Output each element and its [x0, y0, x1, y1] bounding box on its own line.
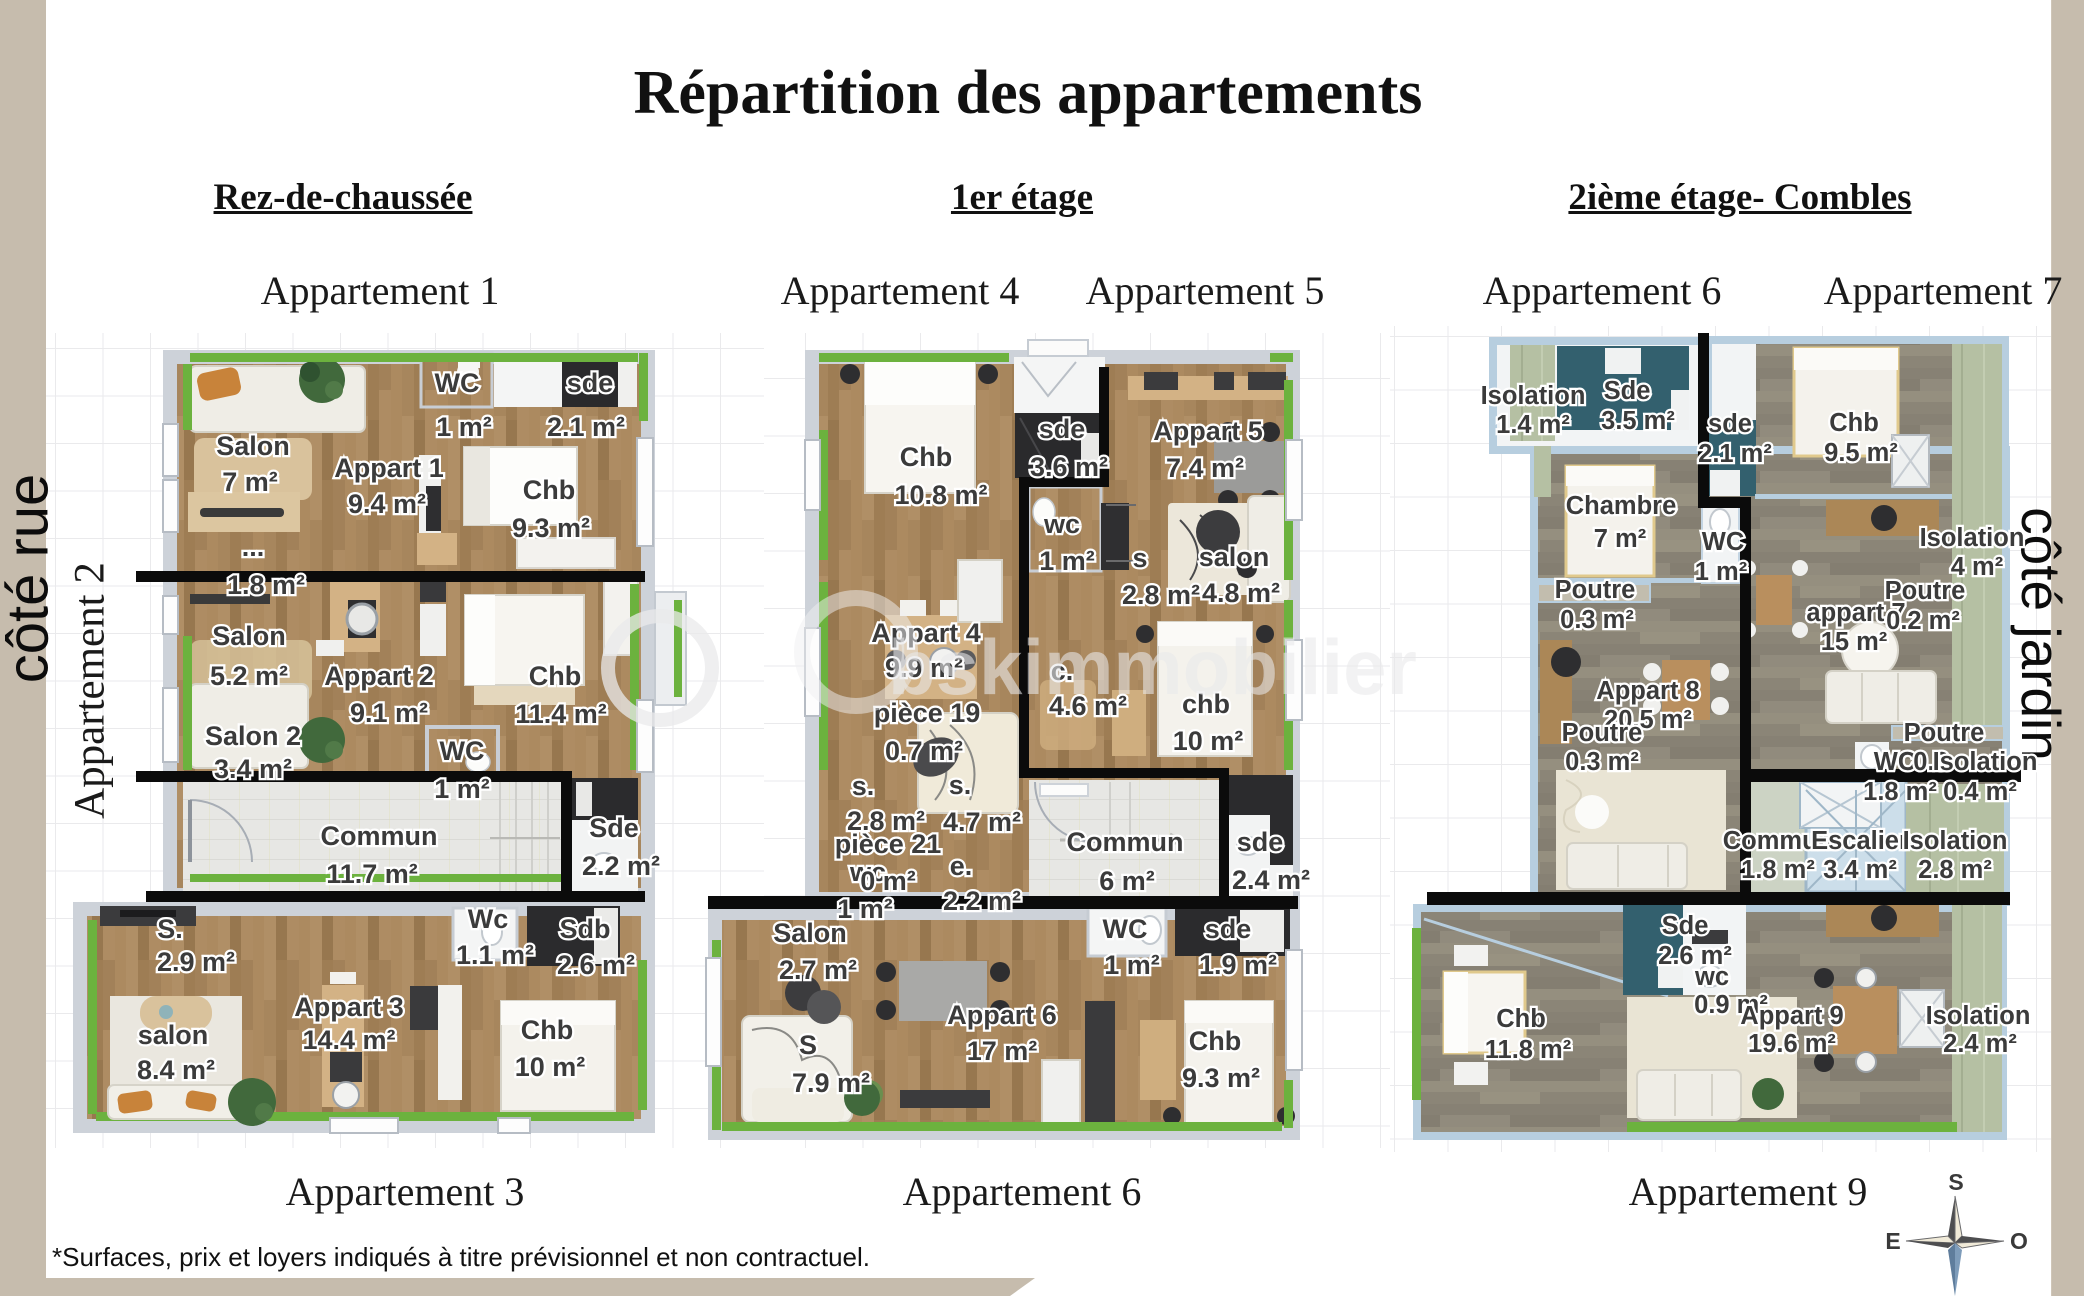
svg-text:0 m²: 0 m²	[860, 866, 916, 896]
svg-text:10.8 m²: 10.8 m²	[894, 480, 987, 510]
svg-text:1 m²: 1 m²	[1695, 558, 1747, 586]
svg-text:Appart 1: Appart 1	[334, 453, 444, 483]
svg-text:2.6 m²: 2.6 m²	[557, 950, 635, 980]
svg-text:Chb: Chb	[1189, 1026, 1241, 1056]
svg-text:sde: sde	[1205, 914, 1252, 944]
svg-text:...: ...	[242, 532, 265, 562]
svg-text:Isolation: Isolation	[1903, 827, 2008, 855]
svg-text:3.4 m²: 3.4 m²	[1823, 856, 1897, 884]
svg-text:Chb: Chb	[523, 475, 575, 505]
svg-text:Appart 3: Appart 3	[294, 992, 404, 1022]
svg-text:Poutre: Poutre	[1562, 719, 1643, 747]
svg-text:Sde: Sde	[1662, 912, 1709, 940]
svg-text:1 m²: 1 m²	[434, 774, 490, 804]
svg-text:2.1 m²: 2.1 m²	[547, 412, 625, 442]
svg-text:1.8 m²: 1.8 m²	[1741, 856, 1815, 884]
svg-text:salon: salon	[138, 1020, 209, 1050]
svg-text:Salon: Salon	[216, 431, 290, 461]
svg-text:S: S	[1948, 1169, 1963, 1195]
svg-text:2.8 m²: 2.8 m²	[1918, 856, 1992, 884]
svg-text:Isolation: Isolation	[1920, 524, 2025, 552]
svg-text:1.4 m²: 1.4 m²	[1496, 411, 1570, 439]
svg-text:1 m²: 1 m²	[1039, 546, 1095, 576]
svg-text:10 m²: 10 m²	[515, 1052, 586, 1082]
svg-text:WC: WC	[1702, 528, 1744, 556]
svg-text:7.9 m²: 7.9 m²	[792, 1068, 870, 1098]
svg-text:WC: WC	[1874, 748, 1916, 776]
svg-text:Chb: Chb	[521, 1015, 573, 1045]
svg-text:8.4 m²: 8.4 m²	[137, 1055, 215, 1085]
svg-text:9.3 m²: 9.3 m²	[512, 513, 590, 543]
svg-text:5.2 m²: 5.2 m²	[210, 661, 288, 691]
svg-text:4.7 m²: 4.7 m²	[943, 807, 1021, 837]
svg-text:Isolation: Isolation	[1481, 382, 1586, 410]
svg-text:4.8 m²: 4.8 m²	[1202, 578, 1280, 608]
svg-text:sde: sde	[1708, 410, 1752, 438]
svg-text:0.4 m²: 0.4 m²	[1943, 778, 2017, 806]
svg-text:O: O	[2010, 1228, 2028, 1254]
svg-text:2.9 m²: 2.9 m²	[157, 947, 235, 977]
svg-text:7 m²: 7 m²	[1594, 525, 1646, 553]
svg-text:9.5 m²: 9.5 m²	[1824, 439, 1898, 467]
svg-text:6 m²: 6 m²	[1099, 866, 1155, 896]
svg-text:1 m²: 1 m²	[1104, 950, 1160, 980]
svg-text:Poutre: Poutre	[1904, 719, 1985, 747]
svg-text:Chb: Chb	[1829, 409, 1879, 437]
svg-text:S: S	[799, 1030, 817, 1060]
svg-text:sde: sde	[567, 368, 614, 398]
svg-text:7.4 m²: 7.4 m²	[1166, 453, 1244, 483]
svg-text:sde: sde	[1039, 414, 1086, 444]
svg-text:Escalier: Escalier	[1811, 827, 1909, 855]
svg-text:2.4 m²: 2.4 m²	[1232, 865, 1310, 895]
svg-text:1.1 m²: 1.1 m²	[456, 940, 534, 970]
svg-text:0.3 m²: 0.3 m²	[1565, 748, 1639, 776]
svg-text:1.8 m²: 1.8 m²	[1863, 778, 1937, 806]
svg-text:2.2 m²: 2.2 m²	[943, 886, 1021, 916]
svg-text:1 m²: 1 m²	[436, 412, 492, 442]
svg-text:Chb: Chb	[900, 442, 952, 472]
svg-text:9.1 m²: 9.1 m²	[350, 698, 428, 728]
svg-text:0.2 m²: 0.2 m²	[1886, 607, 1960, 635]
svg-text:1.9 m²: 1.9 m²	[1199, 950, 1277, 980]
svg-text:WC: WC	[435, 368, 480, 398]
svg-text:14.4 m²: 14.4 m²	[302, 1025, 395, 1055]
svg-text:19.6 m²: 19.6 m²	[1748, 1030, 1836, 1058]
svg-text:Appart 8: Appart 8	[1596, 677, 1699, 705]
svg-text:Sde: Sde	[589, 813, 639, 843]
svg-text:Isolation: Isolation	[1926, 1002, 2031, 1030]
svg-text:wc: wc	[1694, 963, 1729, 991]
svg-text:Chambre: Chambre	[1566, 492, 1677, 520]
svg-text:Appart 6: Appart 6	[947, 1000, 1057, 1030]
svg-text:Chb: Chb	[529, 661, 581, 691]
svg-text:10 m²: 10 m²	[1173, 726, 1244, 756]
svg-text:e.: e.	[950, 851, 973, 881]
svg-text:Commun: Commun	[321, 821, 438, 851]
svg-text:2.8 m²: 2.8 m²	[1122, 580, 1200, 610]
svg-text:Commun: Commun	[1067, 827, 1184, 857]
svg-text:0.7 m²: 0.7 m²	[885, 736, 963, 766]
svg-text:Chb: Chb	[1496, 1005, 1546, 1033]
svg-text:2.2 m²: 2.2 m²	[582, 851, 660, 881]
svg-text:bskimmobilier: bskimmobilier	[888, 623, 1417, 711]
svg-text:Wc: Wc	[468, 904, 509, 934]
svg-text:7 m²: 7 m²	[222, 467, 278, 497]
svg-text:11.7 m²: 11.7 m²	[326, 859, 418, 889]
svg-text:Appart 9: Appart 9	[1740, 1002, 1843, 1030]
svg-text:Sde: Sde	[1604, 377, 1651, 405]
svg-text:wc: wc	[1043, 509, 1080, 539]
svg-text:salon: salon	[1199, 542, 1270, 572]
svg-text:3.6 m²: 3.6 m²	[1030, 452, 1108, 482]
svg-text:11.8 m²: 11.8 m²	[1485, 1036, 1571, 1064]
svg-text:3.5 m²: 3.5 m²	[1601, 407, 1675, 435]
svg-text:s.: s.	[949, 770, 972, 800]
svg-text:E: E	[1885, 1228, 1900, 1254]
svg-text:9.4 m²: 9.4 m²	[348, 489, 426, 519]
svg-text:Sdb: Sdb	[560, 914, 611, 944]
svg-text:Appart 5: Appart 5	[1153, 416, 1263, 446]
svg-text:WC: WC	[1103, 914, 1148, 944]
svg-text:Poutre: Poutre	[1885, 577, 1966, 605]
svg-text:Salon: Salon	[212, 621, 286, 651]
svg-text:Isolation: Isolation	[1933, 748, 2038, 776]
svg-text:2.1 m²: 2.1 m²	[1698, 440, 1772, 468]
svg-text:3.4 m²: 3.4 m²	[214, 754, 292, 784]
svg-text:WC: WC	[440, 736, 485, 766]
svg-text:2.4 m²: 2.4 m²	[1943, 1030, 2017, 1058]
svg-text:2.7 m²: 2.7 m²	[779, 955, 857, 985]
svg-text:17 m²: 17 m²	[967, 1036, 1038, 1066]
svg-text:Salon: Salon	[773, 918, 847, 948]
svg-text:0.3 m²: 0.3 m²	[1560, 606, 1634, 634]
svg-text:1.8 m²: 1.8 m²	[227, 570, 305, 600]
svg-text:s.: s.	[852, 771, 875, 801]
svg-text:Salon 2: Salon 2	[205, 721, 301, 751]
svg-text:15 m²: 15 m²	[1821, 628, 1888, 656]
svg-text:11.4 m²: 11.4 m²	[515, 699, 607, 729]
svg-text:S.: S.	[157, 914, 183, 944]
svg-text:sde: sde	[1237, 827, 1284, 857]
svg-text:Poutre: Poutre	[1555, 576, 1636, 604]
svg-text:Appart 2: Appart 2	[324, 661, 434, 691]
svg-text:9.3 m²: 9.3 m²	[1182, 1063, 1260, 1093]
svg-text:pièce 21: pièce 21	[835, 829, 942, 859]
svg-text:s: s	[1132, 543, 1147, 573]
